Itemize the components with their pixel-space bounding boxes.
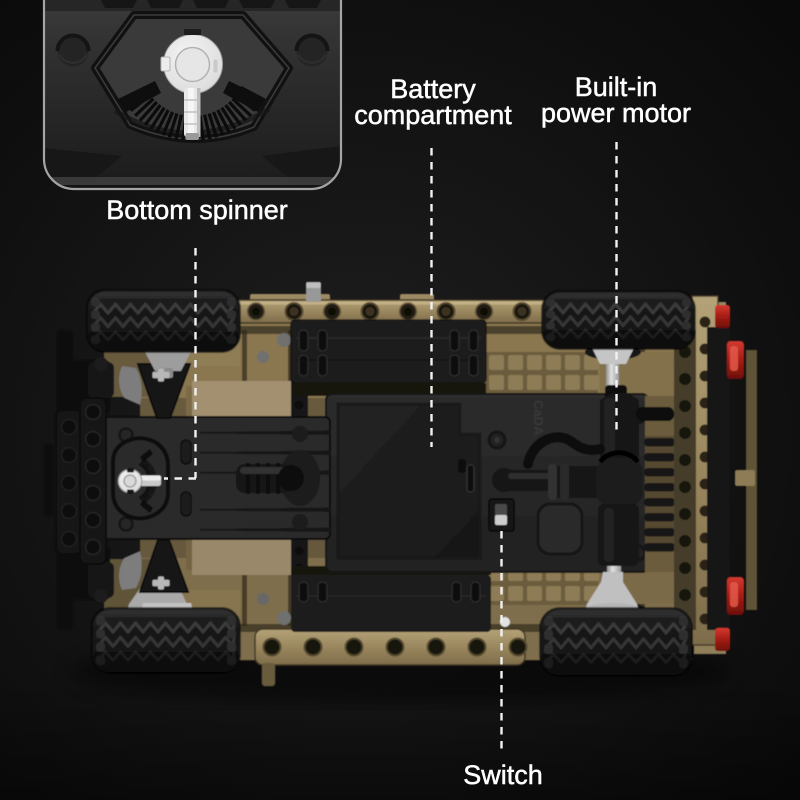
svg-text:CaDA: CaDA [531, 400, 546, 436]
